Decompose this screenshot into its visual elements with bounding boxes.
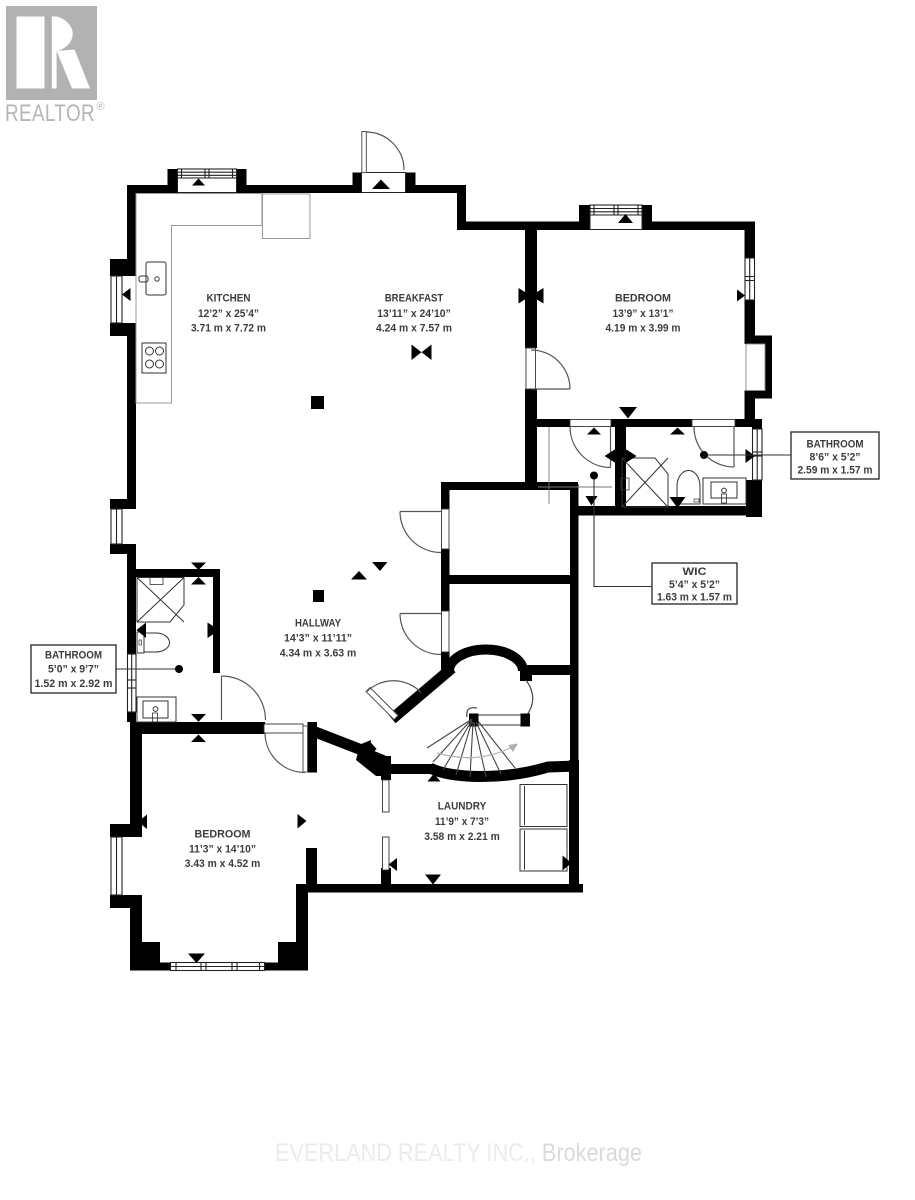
svg-text:12’2” x 25’4”: 12’2” x 25’4” (198, 308, 259, 320)
svg-text:BEDROOM: BEDROOM (195, 829, 251, 841)
svg-text:EVERLAND REALTY INC., Brokerag: EVERLAND REALTY INC., Brokerage (275, 1139, 642, 1167)
svg-text:2.59 m x 1.57 m: 2.59 m x 1.57 m (798, 465, 873, 477)
svg-text:3.43 m x 4.52 m: 3.43 m x 4.52 m (185, 858, 261, 870)
svg-text:14’3” x 11’11”: 14’3” x 11’11” (284, 633, 352, 645)
svg-text:BATHROOM: BATHROOM (807, 439, 864, 451)
svg-text:4.19 m x 3.99 m: 4.19 m x 3.99 m (606, 323, 681, 335)
svg-text:5’0” x 9’7”: 5’0” x 9’7” (48, 664, 99, 676)
svg-text:KITCHEN: KITCHEN (207, 293, 251, 305)
svg-text:BEDROOM: BEDROOM (615, 293, 671, 305)
svg-text:1.52 m x 2.92 m: 1.52 m x 2.92 m (35, 678, 113, 690)
svg-text:11’3” x 14’10”: 11’3” x 14’10” (189, 844, 256, 856)
svg-text:5’4” x 5’2”: 5’4” x 5’2” (669, 579, 720, 591)
svg-text:8’6” x 5’2”: 8’6” x 5’2” (810, 452, 861, 464)
svg-text:BREAKFAST: BREAKFAST (385, 293, 444, 305)
svg-text:4.24 m x 7.57 m: 4.24 m x 7.57 m (376, 323, 452, 335)
svg-text:HALLWAY: HALLWAY (295, 618, 342, 630)
svg-text:13’9” x 13’1”: 13’9” x 13’1” (613, 308, 674, 320)
svg-text:11’9” x 7’3”: 11’9” x 7’3” (435, 816, 489, 828)
svg-text:REALTOR: REALTOR (5, 100, 95, 127)
svg-text:4.34 m x 3.63 m: 4.34 m x 3.63 m (280, 648, 357, 660)
svg-text:1.63 m x 1.57 m: 1.63 m x 1.57 m (657, 592, 732, 604)
svg-text:®: ® (97, 101, 105, 113)
svg-text:BATHROOM: BATHROOM (45, 650, 102, 662)
svg-text:WIC: WIC (683, 566, 707, 578)
svg-text:3.58 m x 2.21 m: 3.58 m x 2.21 m (424, 831, 500, 843)
svg-text:LAUNDRY: LAUNDRY (438, 801, 487, 813)
svg-text:3.71 m x 7.72 m: 3.71 m x 7.72 m (191, 323, 266, 335)
svg-text:13’11” x 24’10”: 13’11” x 24’10” (377, 308, 451, 320)
